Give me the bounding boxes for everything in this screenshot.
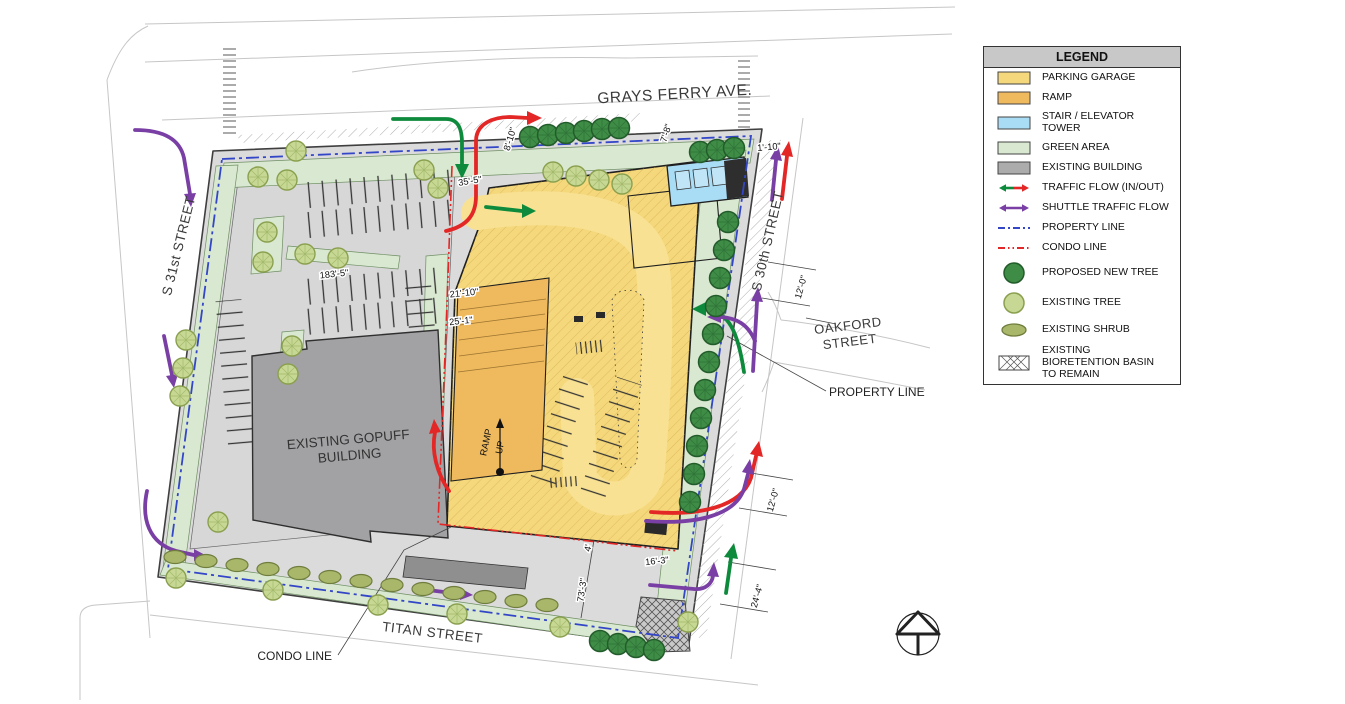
svg-text:1'-10": 1'-10" [757, 141, 781, 153]
svg-text:24'-4": 24'-4" [749, 583, 765, 609]
street-label-s31: S 31st STREET [159, 195, 198, 297]
legend-item-existing-shrub: EXISTING SHRUB [984, 318, 1180, 342]
shuttle-flow-icon [996, 201, 1032, 215]
legend-item-ramp: RAMP [984, 88, 1180, 108]
proposed-tree-legend-icon [996, 261, 1032, 285]
legend-item-proposed-tree: PROPOSED NEW TREE [984, 258, 1180, 288]
legend-title: LEGEND [984, 47, 1180, 68]
legend-item-existing-tree: EXISTING TREE [984, 288, 1180, 318]
garage-equipment [574, 316, 583, 322]
legend-item-condo-line: CONDO LINE [984, 238, 1180, 258]
stair-tower-swatch-icon [996, 116, 1032, 130]
garage-crosswalk [550, 476, 578, 488]
street-label-grays-ferry: GRAYS FERRY AVE. [597, 82, 753, 108]
ramp-swatch-icon [996, 91, 1032, 105]
legend-panel: LEGEND PARKING GARAGE RAMP STAIR / ELEVA… [983, 46, 1181, 385]
north-arrow-icon [897, 612, 939, 655]
street-label-titan: TITAN STREET [381, 619, 483, 646]
street-label-oakford: OAKFORD STREET [813, 314, 884, 353]
green-area-swatch-icon [996, 141, 1032, 155]
stair-elevator-tower [667, 157, 749, 206]
existing-building-swatch-icon [996, 161, 1032, 175]
legend-item-property-line: PROPERTY LINE [984, 218, 1180, 238]
bioretention-legend-icon [996, 353, 1032, 373]
existing-shrub-legend-icon [996, 321, 1032, 339]
legend-item-bioretention: EXISTING BIORETENTION BASIN TO REMAIN [984, 342, 1180, 384]
existing-tree-legend-icon [996, 291, 1032, 315]
svg-text:12'-0": 12'-0" [793, 274, 809, 300]
condo-line-icon [996, 241, 1032, 255]
condo-line-label: CONDO LINE [257, 649, 332, 663]
legend-item-existing-building: EXISTING BUILDING [984, 158, 1180, 178]
svg-text:12'-0": 12'-0" [765, 487, 781, 513]
property-line-icon [996, 221, 1032, 235]
site-plan-page: GRAYS FERRY AVE. S 31st STREET S 30th ST… [0, 0, 1345, 704]
property-line-label: PROPERTY LINE [829, 385, 925, 399]
traffic-flow-icon [996, 181, 1032, 195]
elevator-core [724, 158, 749, 199]
legend-item-shuttle-flow: SHUTTLE TRAFFIC FLOW [984, 198, 1180, 218]
parking-garage-swatch-icon [996, 71, 1032, 85]
legend-item-green-area: GREEN AREA [984, 138, 1180, 158]
legend-item-parking-garage: PARKING GARAGE [984, 68, 1180, 88]
legend-item-traffic-flow: TRAFFIC FLOW (IN/OUT) [984, 178, 1180, 198]
legend-item-stair-tower: STAIR / ELEVATOR TOWER [984, 108, 1180, 138]
garage-equipment [596, 312, 605, 318]
